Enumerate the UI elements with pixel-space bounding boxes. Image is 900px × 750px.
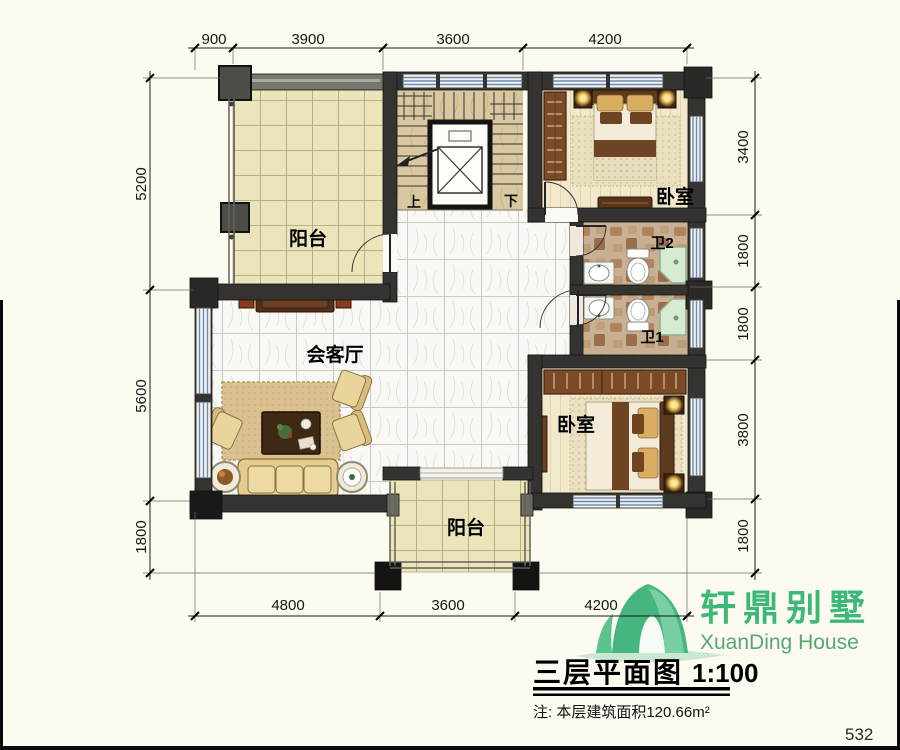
coffee-table (262, 412, 320, 454)
balcony-top-floor (233, 88, 390, 300)
bed-cushion (632, 452, 644, 472)
wall-balcony-bottom-left-stub (383, 467, 420, 480)
sofa (238, 459, 338, 498)
label-bedroom-bottom: 卧室 (557, 413, 595, 436)
dim-right-2: 1800 (735, 307, 752, 340)
label-bath1: 卫1 (640, 329, 663, 346)
dim-right-0: 3400 (735, 130, 752, 163)
logo-name-en: XuanDing House (700, 631, 859, 654)
dim-right-3: 3800 (735, 413, 752, 446)
wall-balcony-bottom-right-stub (503, 467, 533, 480)
dim-top-2: 3600 (436, 31, 469, 48)
railing-balcony-top-left (229, 98, 234, 284)
bath1-toilet (627, 299, 649, 331)
dim-right-4: 1800 (735, 519, 752, 552)
dim-top-3: 4200 (588, 31, 621, 48)
dim-left-0: 5200 (133, 167, 150, 200)
title-block: 三层平面图 1:100 注: 本层建筑面积120.66m² 532 (533, 657, 873, 744)
nightstand (574, 88, 592, 108)
nightstand (658, 88, 676, 108)
floor-plan-drawing: 阳台 会客厅 卧室 卫2 卫1 卧室 阳台 上 下 900 3900 3600 … (0, 0, 900, 750)
nightstand (664, 474, 684, 492)
window-living-left-a (196, 308, 211, 394)
area-note: 注: 本层建筑面积120.66m² (533, 704, 710, 721)
label-bedroom-top: 卧室 (656, 185, 694, 208)
label-balcony-top: 阳台 (289, 227, 327, 250)
column-balcony-nw (219, 66, 251, 100)
column-balcony-bottom-r (513, 562, 539, 590)
label-stair-down: 下 (504, 193, 518, 209)
wall-bath-divider (570, 285, 688, 295)
wall-bedroom-bottom-top (528, 355, 706, 368)
window-bedroom-bottom-right (690, 398, 703, 476)
window-living-left-b (196, 402, 211, 478)
pillar-top-right (684, 67, 712, 98)
side-table-right (337, 462, 367, 492)
elevator (430, 122, 490, 207)
logo: 轩鼎别墅 XuanDing House (575, 584, 872, 662)
label-balcony-bottom: 阳台 (447, 516, 485, 539)
hall-floor-a (390, 210, 577, 360)
wall-stair-west (383, 72, 397, 235)
xuanding-logo-icon (596, 584, 688, 653)
pillar-living-nw (190, 278, 218, 308)
title-rule-thin (533, 694, 730, 697)
bed-pillow (597, 95, 623, 111)
label-bath2: 卫2 (650, 235, 673, 252)
window-bedroom-top-right (690, 116, 703, 182)
bed-pillow (627, 95, 653, 111)
side-table-left (210, 462, 240, 492)
floor-plan-page: 阳台 会客厅 卧室 卫2 卫1 卧室 阳台 上 下 900 3900 3600 … (0, 0, 900, 750)
bed-cushion (632, 414, 644, 434)
title-rule-thick (533, 687, 730, 691)
pier-balcony-bottom-l (387, 494, 399, 516)
bath2-toilet (627, 249, 649, 284)
wardrobe-bottom-bedroom (544, 370, 686, 394)
dim-top-0: 900 (201, 31, 226, 48)
wall-living-top (212, 284, 390, 300)
bed-cushion (630, 112, 652, 124)
window-bedroom-top (553, 74, 663, 88)
window-bath2-right (690, 228, 703, 278)
table-dish (301, 419, 311, 429)
dim-right-1: 1800 (735, 234, 752, 267)
dim-top-1: 3900 (291, 31, 324, 48)
bed-runner (612, 402, 629, 490)
label-stair-up: 上 (407, 194, 421, 210)
hall-floor-b (390, 360, 542, 467)
logo-name-cn: 轩鼎别墅 (700, 587, 872, 628)
wall-bedroom-top-left (528, 72, 542, 222)
dim-left-2: 1800 (133, 520, 150, 553)
bed-top (592, 90, 658, 180)
wardrobe-top-bedroom (544, 92, 566, 180)
dim-left-1: 5600 (133, 379, 150, 412)
drawing-title: 三层平面图 (533, 657, 683, 688)
pier-balcony-bottom-r (521, 494, 533, 516)
bed-cushion (600, 112, 622, 124)
nightstand (664, 396, 684, 414)
frame-left (0, 300, 3, 750)
bed-runner (594, 140, 656, 157)
window-bath1-right (690, 300, 703, 348)
page-number: 532 (845, 725, 873, 744)
drawing-scale: 1:100 (692, 658, 759, 688)
dim-bottom-1: 3600 (431, 597, 464, 614)
label-living-room: 会客厅 (306, 343, 363, 366)
dim-bottom-2: 4200 (584, 597, 617, 614)
bed-bottom (586, 402, 674, 490)
frame-bottom (0, 746, 900, 750)
window-stair-top (403, 74, 522, 88)
dim-bottom-0: 4800 (271, 597, 304, 614)
column-balcony-w (221, 203, 249, 232)
column-balcony-bottom-l (375, 562, 401, 590)
window-bedroom-bottom-south (573, 495, 663, 508)
